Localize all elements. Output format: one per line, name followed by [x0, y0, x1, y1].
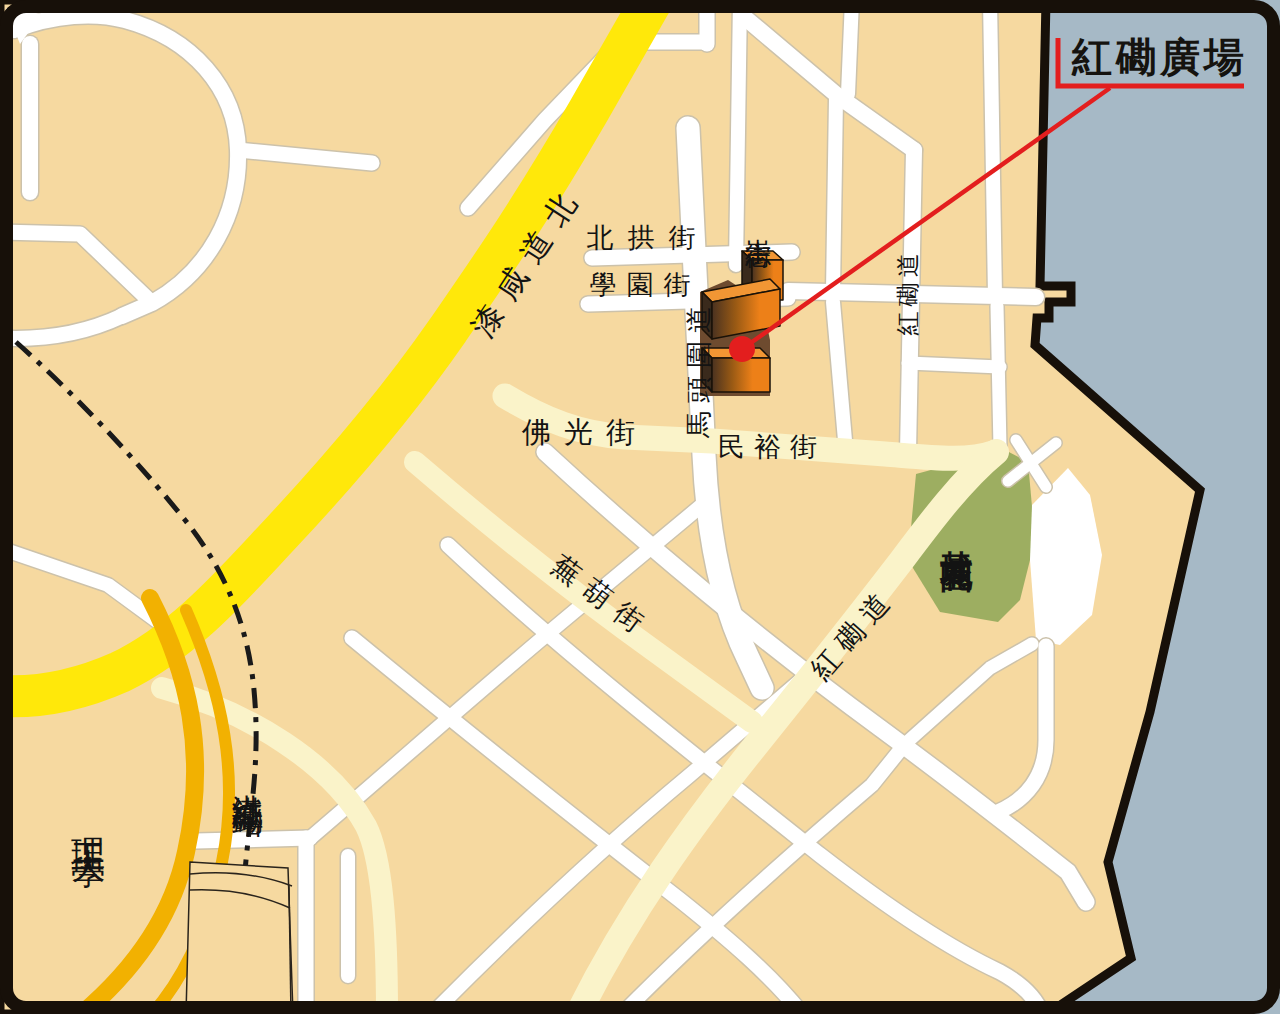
- road-ne-v: [848, 0, 852, 94]
- place-label-whampoa-garden: 黃埔花園: [939, 525, 972, 541]
- map-title: 紅磡廣場: [1072, 30, 1248, 85]
- road-coast-v-upper: [990, 0, 995, 296]
- place-label-polytechnic-university: 理工大學: [70, 810, 105, 834]
- road-coast-v-lower: [997, 306, 1000, 448]
- street-label-hung-hom-road-north: 紅磡道: [896, 249, 921, 336]
- street-label-sung-chi: 崇志街: [744, 218, 771, 227]
- map-canvas: [0, 0, 1280, 1014]
- location-dot: [729, 336, 755, 362]
- hung-hom-map: 紅磡廣場 北拱街 學園街 崇志街 馬頭圍道 紅磡道 佛光街 民裕街 蕪葫街 紅磡…: [0, 0, 1280, 1014]
- street-label-ma-tau-wai: 馬頭圍道: [685, 298, 713, 438]
- station-block: [186, 862, 293, 1014]
- road-mid-v-upper: [833, 98, 836, 291]
- road-sung-chi-street: [736, 0, 740, 265]
- street-label-pak-kung: 北拱街: [587, 224, 710, 252]
- street-label-hok-yuen: 學園街: [590, 271, 701, 299]
- road-station-h: [196, 838, 310, 841]
- road-east-h: [908, 363, 1000, 367]
- street-label-man-yue: 民裕街: [718, 433, 826, 461]
- street-label-fat-kwong: 佛光街: [522, 417, 648, 447]
- place-label-mtr-hung-hom-station: 港鐵紅磡站: [231, 770, 263, 785]
